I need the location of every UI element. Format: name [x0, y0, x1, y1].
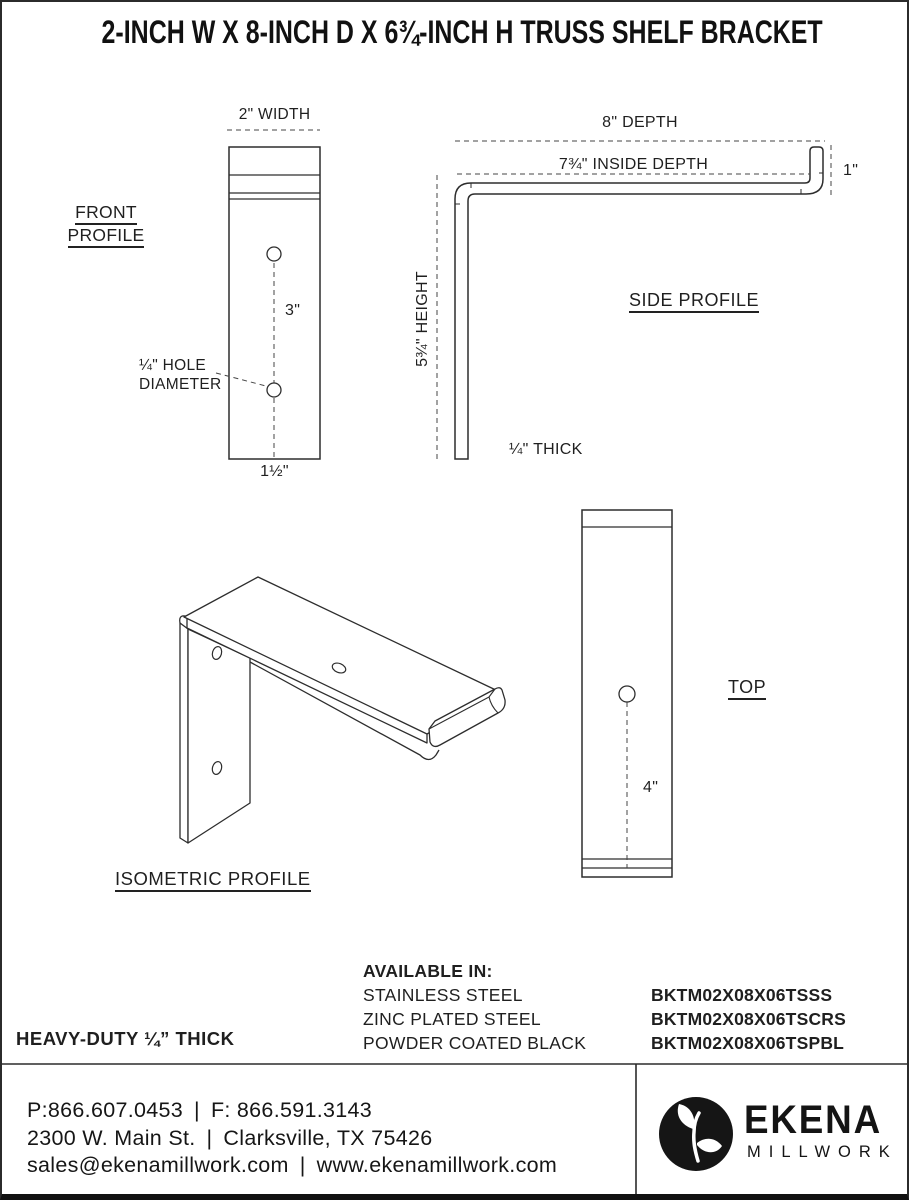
front-hole-top: [267, 247, 281, 261]
footer-address-line: 2300 W. Main St.|Clarksville, TX 75426: [27, 1126, 432, 1151]
website-url: www.ekenamillwork.com: [317, 1153, 557, 1177]
ekena-logo: [658, 1096, 734, 1172]
side-profile-label-text: SIDE PROFILE: [629, 290, 759, 313]
side-inside-depth-dimension: 7¾" INSIDE DEPTH: [455, 156, 812, 174]
fax-number: F: 866.591.3143: [211, 1098, 372, 1122]
spec-sheet-page: 2-INCH W X 8-INCH D X 6¾-INCH H TRUSS SH…: [0, 0, 909, 1200]
phone-number: P:866.607.0453: [27, 1098, 183, 1122]
top-view-label-text: TOP: [728, 677, 766, 700]
footer-phone-line: P:866.607.0453|F: 866.591.3143: [27, 1098, 372, 1123]
separator: |: [207, 1126, 213, 1150]
finish-option: POWDER COATED BLACK: [363, 1033, 586, 1054]
side-depth-dimension: 8" DEPTH: [455, 114, 825, 132]
brand-subtitle: MILLWORK: [747, 1143, 898, 1162]
top-view-hole: [619, 686, 635, 702]
isometric-profile-label-text: ISOMETRIC PROFILE: [115, 868, 311, 892]
finish-option: ZINC PLATED STEEL: [363, 1009, 541, 1030]
page-title: 2-INCH W X 8-INCH D X 6¾-INCH H TRUSS SH…: [102, 14, 808, 51]
hole-diameter-line1: ¼" HOLE: [139, 357, 206, 374]
heavy-duty-note: HEAVY-DUTY ¼” THICK: [16, 1028, 235, 1050]
brand-name: EKENA: [744, 1098, 882, 1143]
leaf-icon: [658, 1096, 734, 1172]
front-hole-spacing-dimension: 3": [285, 302, 300, 320]
front-profile-label-line1: FRONT: [75, 202, 137, 225]
hole-diameter-line2: DIAMETER: [139, 376, 222, 393]
top-view-label: TOP: [728, 677, 766, 698]
front-bottom-offset-dimension: 1½": [229, 463, 320, 481]
side-height-dimension: 5¾" HEIGHT: [414, 259, 432, 379]
footer-web-line: sales@ekenamillwork.com|www.ekenamillwor…: [27, 1153, 557, 1178]
street-address: 2300 W. Main St.: [27, 1126, 196, 1150]
front-profile-label-line2: PROFILE: [68, 225, 145, 248]
separator: |: [194, 1098, 200, 1122]
front-width-dimension: 2" WIDTH: [229, 106, 320, 124]
top-view-drawing: [582, 510, 672, 877]
sku-code: BKTM02X08X06TSCRS: [651, 1009, 846, 1030]
front-profile-drawing: [216, 130, 320, 459]
finish-option: STAINLESS STEEL: [363, 985, 523, 1006]
side-thickness-dimension: ¼" THICK: [509, 441, 583, 459]
email-address: sales@ekenamillwork.com: [27, 1153, 289, 1177]
sku-code: BKTM02X08X06TSSS: [651, 985, 832, 1006]
side-profile-label: SIDE PROFILE: [629, 290, 759, 311]
city-state: Clarksville, TX 75426: [223, 1126, 432, 1150]
front-profile-label: FRONT PROFILE: [52, 201, 160, 247]
front-hole-bottom: [267, 383, 281, 397]
front-hole-diameter-dimension: ¼" HOLE DIAMETER: [139, 356, 222, 394]
available-in-heading: AVAILABLE IN:: [363, 961, 493, 982]
isometric-drawing: [180, 577, 505, 843]
sku-code: BKTM02X08X06TSPBL: [651, 1033, 844, 1054]
side-lip-height-dimension: 1": [843, 162, 858, 180]
separator: |: [300, 1153, 306, 1177]
top-hole-offset-dimension: 4": [643, 779, 658, 797]
isometric-profile-label: ISOMETRIC PROFILE: [115, 868, 311, 890]
